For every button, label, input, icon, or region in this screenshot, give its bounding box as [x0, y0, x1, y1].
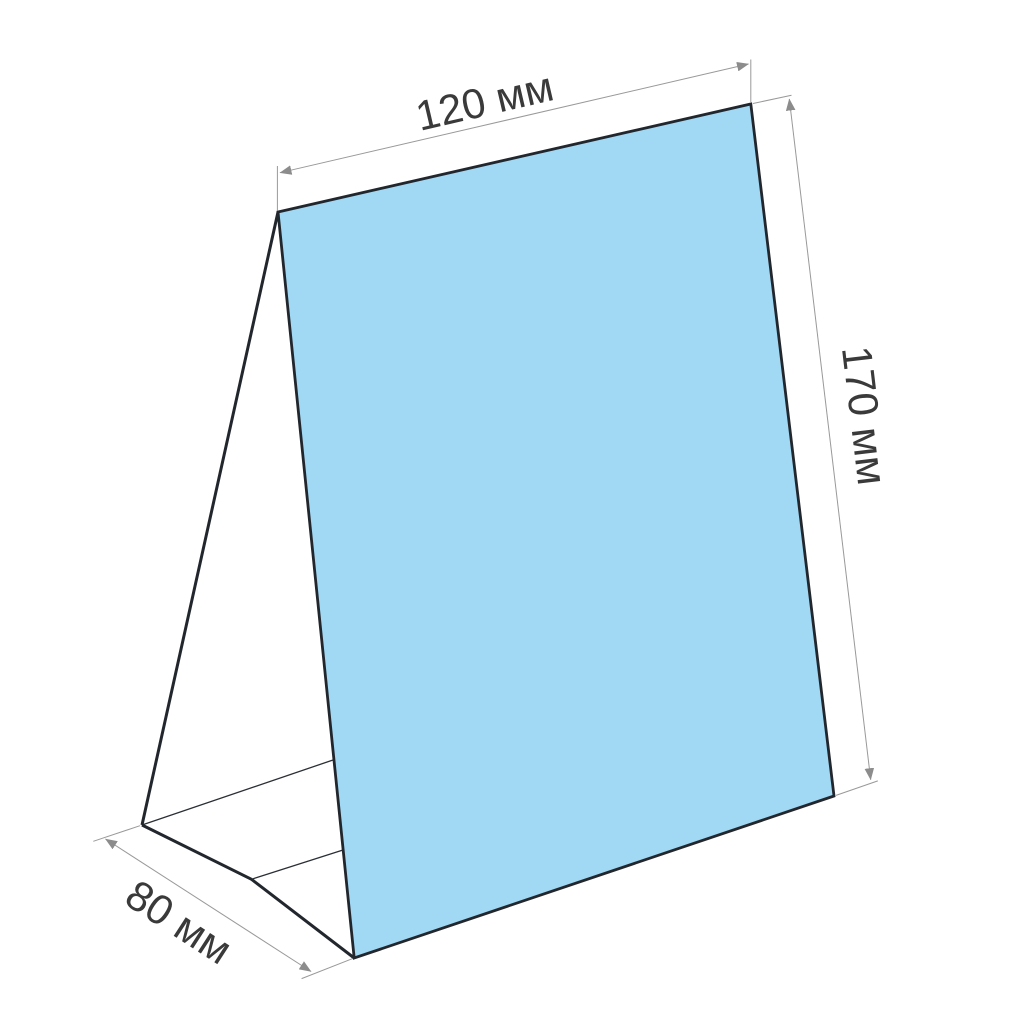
svg-text:170 мм: 170 мм — [833, 343, 896, 487]
svg-text:120 мм: 120 мм — [411, 62, 558, 139]
